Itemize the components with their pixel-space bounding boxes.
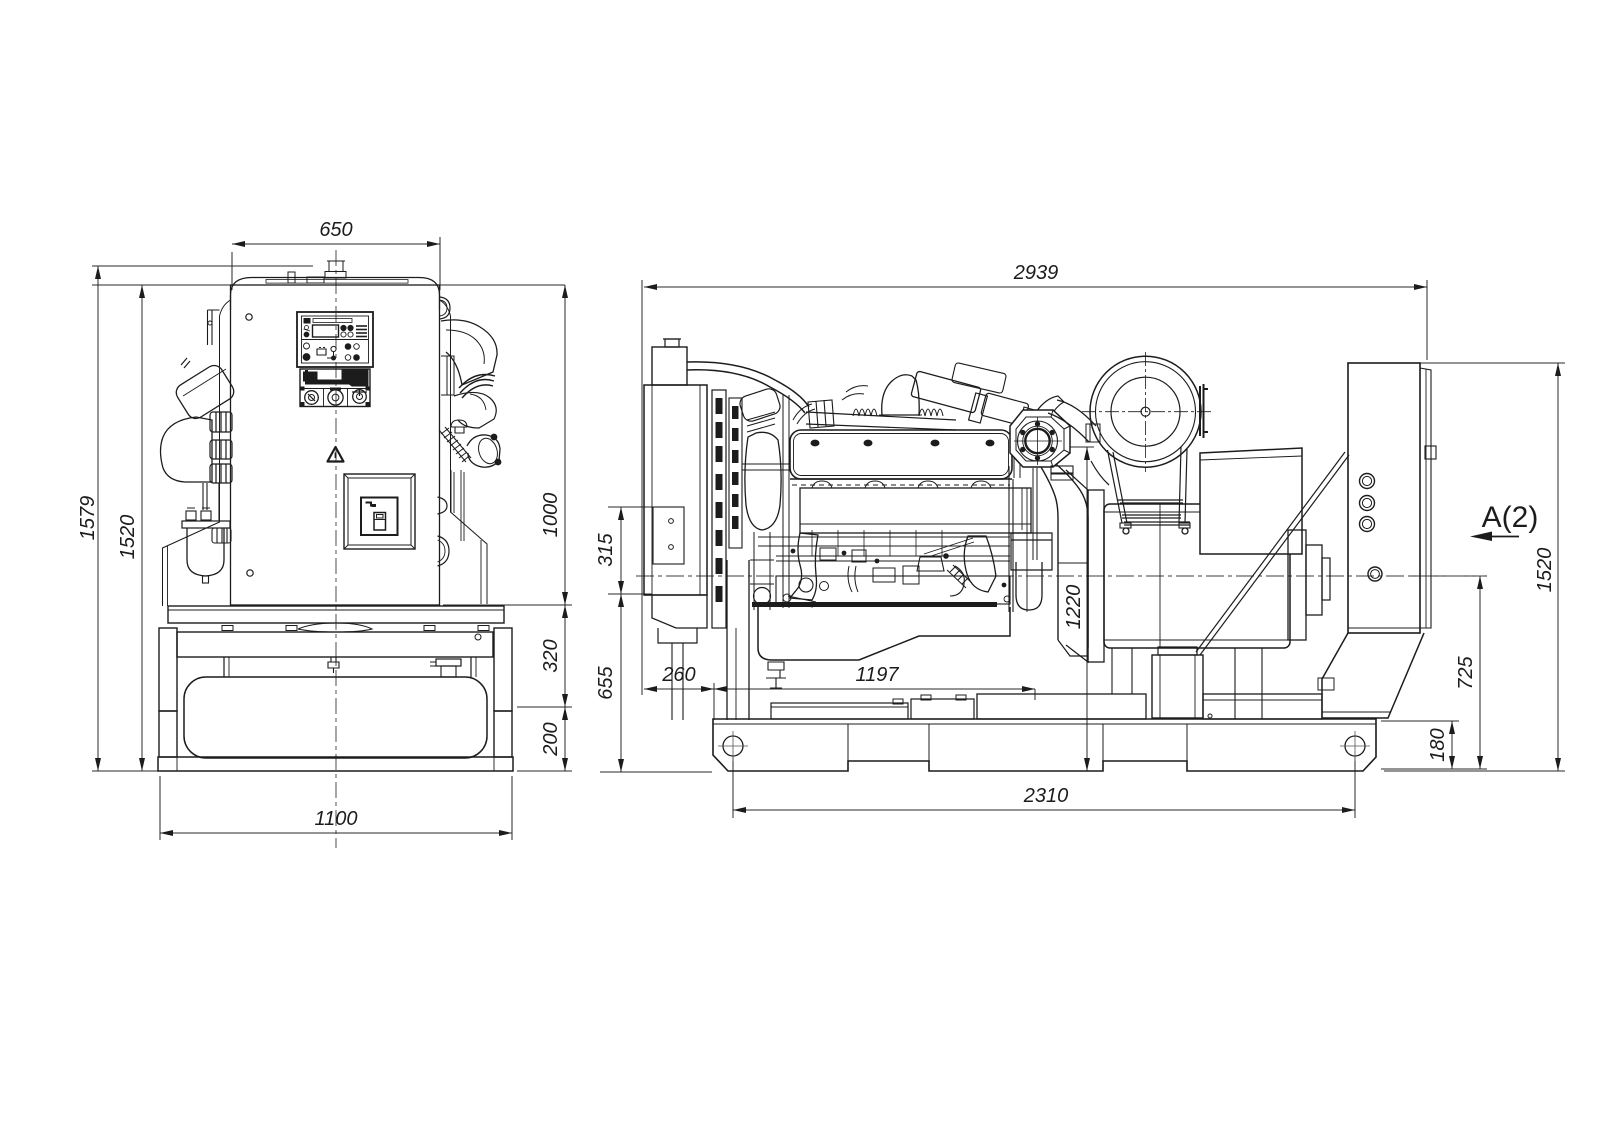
svg-text:A(2): A(2) bbox=[1482, 501, 1539, 534]
svg-text:180: 180 bbox=[1427, 728, 1449, 761]
svg-text:1520: 1520 bbox=[117, 515, 139, 560]
svg-text:725: 725 bbox=[1455, 655, 1477, 689]
svg-text:1197: 1197 bbox=[855, 664, 899, 686]
svg-text:1100: 1100 bbox=[314, 808, 357, 830]
svg-text:1000: 1000 bbox=[540, 493, 562, 538]
svg-text:1520: 1520 bbox=[1534, 548, 1556, 593]
svg-text:1579: 1579 bbox=[77, 496, 99, 541]
svg-text:260: 260 bbox=[661, 664, 695, 686]
svg-text:2310: 2310 bbox=[1023, 785, 1069, 807]
svg-text:650: 650 bbox=[319, 219, 352, 241]
svg-text:2939: 2939 bbox=[1013, 262, 1059, 284]
svg-text:320: 320 bbox=[540, 639, 562, 672]
svg-text:1220: 1220 bbox=[1063, 585, 1085, 630]
svg-text:655: 655 bbox=[595, 665, 617, 699]
svg-text:200: 200 bbox=[540, 722, 562, 756]
svg-text:315: 315 bbox=[595, 532, 617, 566]
